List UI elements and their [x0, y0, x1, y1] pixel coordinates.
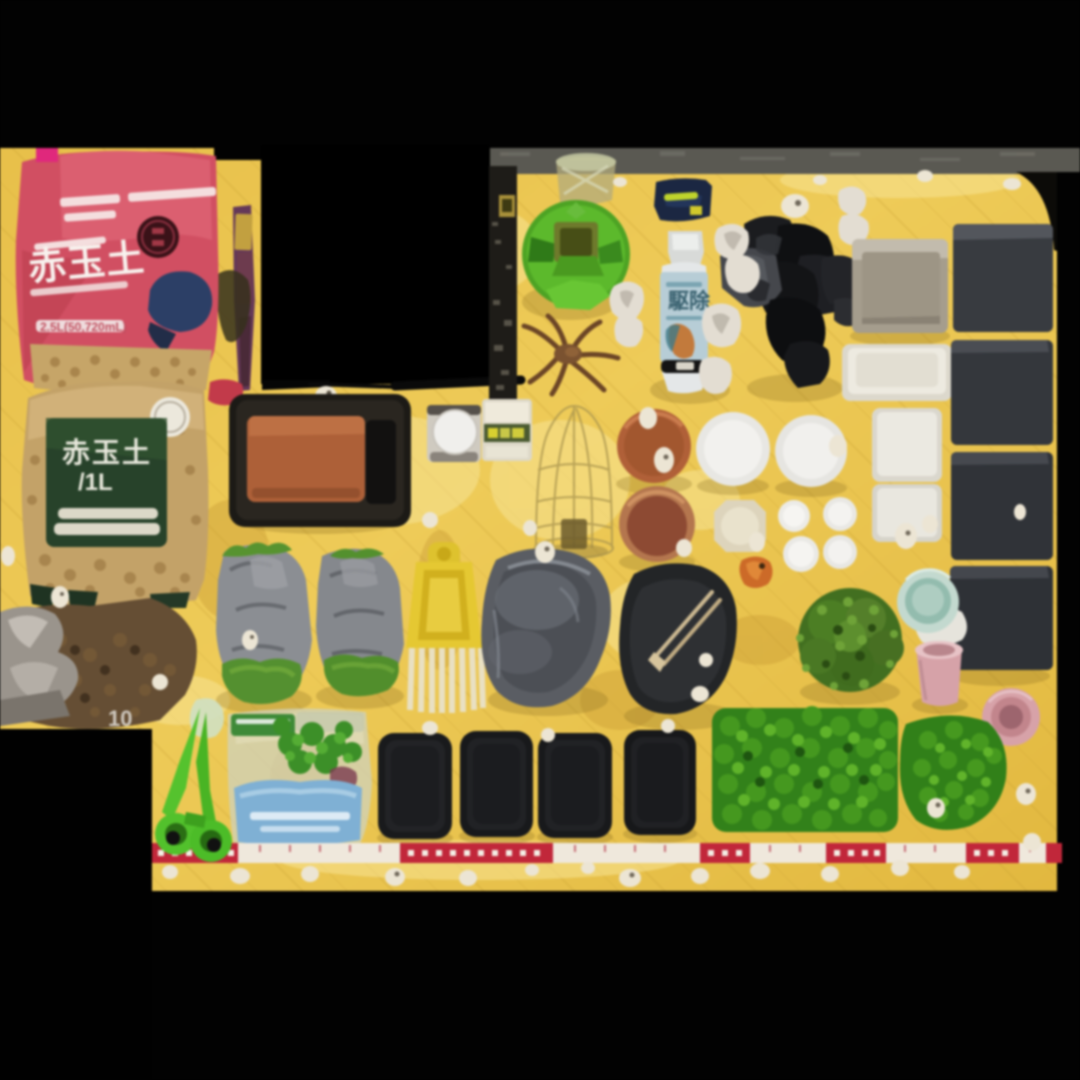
- svg-text:赤玉土: 赤玉土: [62, 437, 152, 468]
- svg-text:/1L: /1L: [78, 469, 113, 496]
- svg-text:2.5L(50,720mL): 2.5L(50,720mL): [40, 320, 127, 334]
- svg-text:駆除: 駆除: [668, 289, 711, 313]
- svg-text:10: 10: [108, 706, 132, 731]
